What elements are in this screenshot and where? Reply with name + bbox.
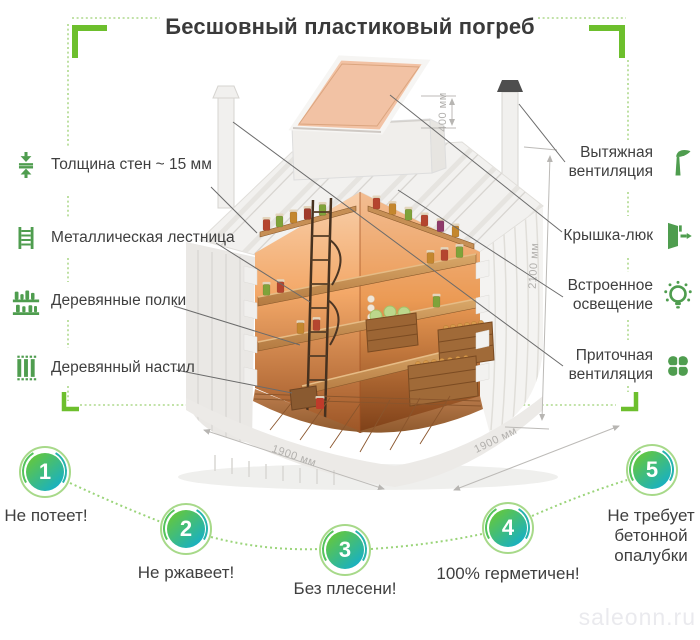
benefit-label: 100% герметичен! (413, 564, 603, 584)
feature-label: Крышка-люк (548, 227, 653, 246)
watermark: saleonn.ru (579, 604, 696, 631)
feature-supply-vent: Приточная вентиляция (548, 347, 694, 384)
feature-wall-thickness: Толщина стен ~ 15 мм (10, 150, 212, 180)
benefit-badge-3: 3 (319, 524, 371, 576)
benefit-label: Без плесени! (283, 579, 407, 599)
supply-vent-pipe (213, 86, 239, 208)
feature-shelves: Деревянные полки (10, 286, 186, 316)
feature-lighting: Встроенное освещение (548, 277, 694, 314)
exhaust-vent-icon (662, 147, 694, 179)
lighting-icon (662, 280, 694, 312)
benefit-number: 1 (26, 453, 64, 491)
page-title: Бесшовный пластиковый погреб (0, 14, 700, 40)
feature-label: Толщина стен ~ 15 мм (51, 156, 212, 175)
benefit-number: 2 (167, 510, 205, 548)
benefit-label: Не требует бетонной опалубки (596, 506, 700, 566)
supply-vent-icon (662, 352, 694, 380)
feature-label: Деревянный настил (51, 359, 195, 378)
feature-label: Металлическая лестница (51, 229, 235, 248)
dimension-label-hatch: 400 мм (437, 92, 449, 132)
benefit-badge-5: 5 (626, 444, 678, 496)
feature-decking: Деревянный настил (10, 352, 195, 384)
benefit-number: 3 (326, 531, 364, 569)
feature-hatch: Крышка-люк (548, 221, 694, 251)
feature-label: Вытяжная вентиляция (548, 144, 653, 181)
benefit-number: 5 (633, 451, 671, 489)
feature-label: Встроенное освещение (548, 277, 653, 314)
dimension-label-height: 2100 мм (527, 242, 541, 289)
feature-label: Приточная вентиляция (548, 347, 653, 384)
feature-ladder: Металлическая лестница (10, 222, 235, 254)
infographic-page: 400 мм 2100 мм 1900 мм 1900 мм Бесшовный… (0, 0, 700, 640)
benefit-label: Не потеет! (0, 506, 94, 526)
ladder-icon (10, 222, 42, 254)
benefit-label: Не ржавеет! (126, 563, 246, 583)
feature-exhaust-vent: Вытяжная вентиляция (548, 144, 694, 181)
decking-icon (10, 352, 42, 384)
benefit-number: 4 (489, 509, 527, 547)
benefit-badge-2: 2 (160, 503, 212, 555)
shelves-icon (10, 286, 42, 316)
wall-thickness-icon (10, 150, 42, 180)
feature-label: Деревянные полки (51, 292, 186, 311)
hatch-icon (662, 221, 694, 251)
benefit-badge-4: 4 (482, 502, 534, 554)
benefit-badge-1: 1 (19, 446, 71, 498)
